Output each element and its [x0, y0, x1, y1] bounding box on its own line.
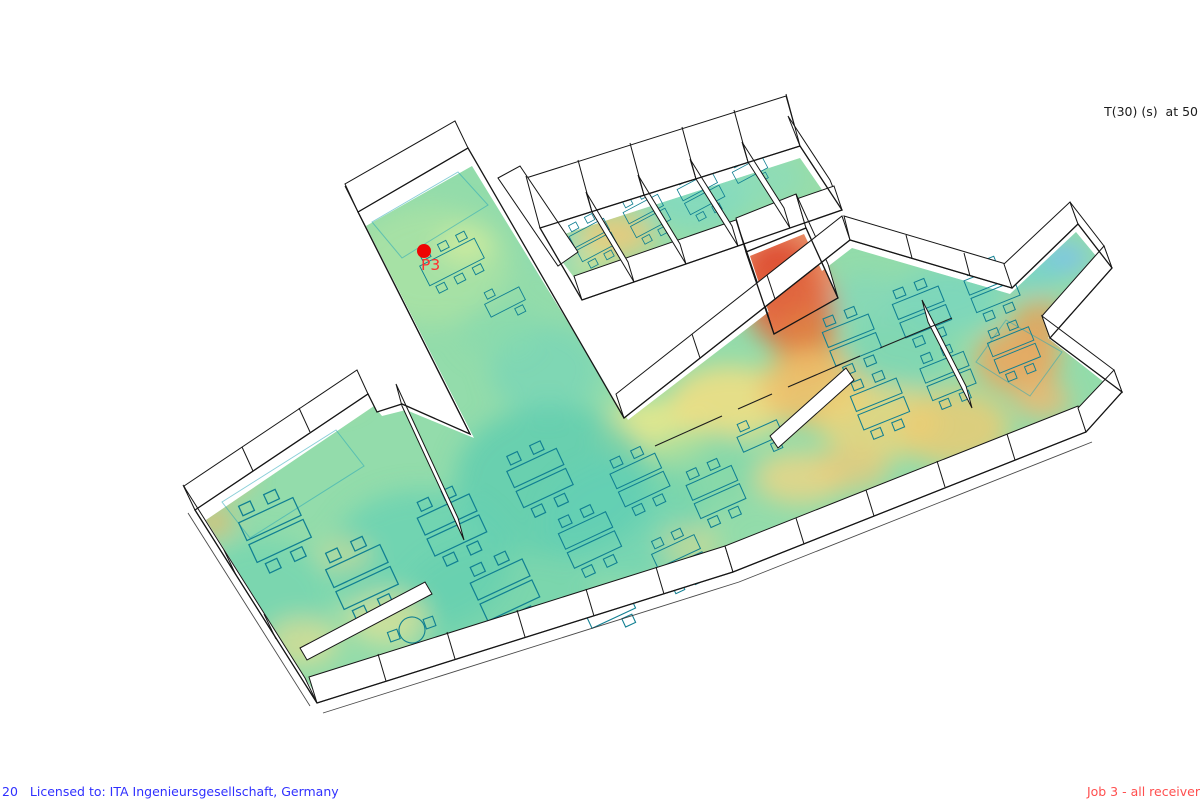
- render-viewport[interactable]: [0, 0, 1200, 800]
- acoustics-result-window: T(30) (s) at 50 P3 20Licensed to: ITA In…: [0, 0, 1200, 800]
- job-label: Job 3 - all receiver: [1087, 785, 1200, 799]
- license-text: Licensed to: ITA Ingenieursgesellschaft,…: [30, 784, 339, 799]
- receiver-marker-label: P3: [421, 256, 440, 274]
- metric-label: T(30) (s) at 50: [1104, 105, 1198, 119]
- license-number: 20: [2, 784, 18, 799]
- license-line: 20Licensed to: ITA Ingenieursgesellschaf…: [2, 785, 339, 799]
- floor-heatmap: [192, 146, 1122, 703]
